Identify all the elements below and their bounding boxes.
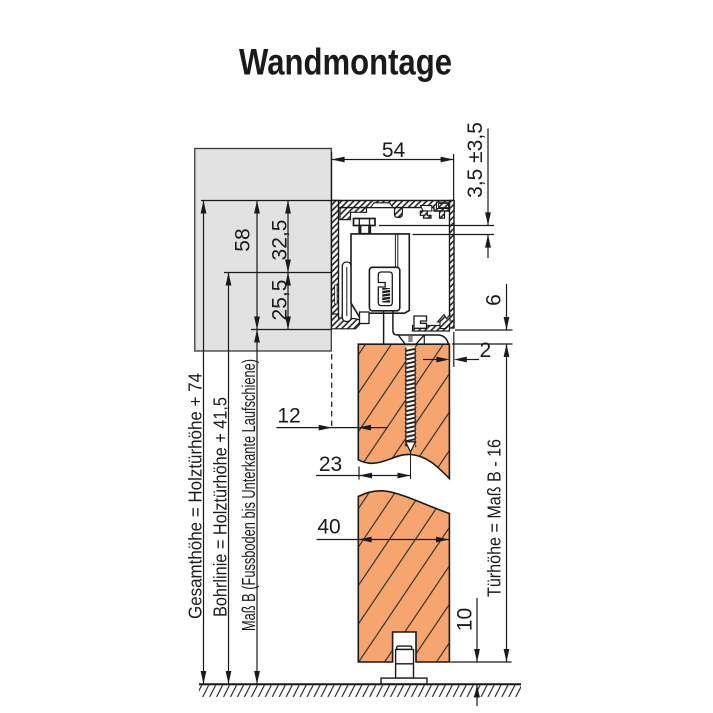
svg-text:58: 58 <box>232 228 255 251</box>
svg-text:25,5: 25,5 <box>269 280 292 321</box>
svg-text:40: 40 <box>317 516 340 539</box>
svg-text:2: 2 <box>480 339 492 362</box>
svg-text:32,5: 32,5 <box>269 220 292 261</box>
svg-text:3,5 ±3,5: 3,5 ±3,5 <box>464 122 487 198</box>
svg-text:54: 54 <box>382 139 406 162</box>
svg-text:Bohrlinie = Holztürhöhe + 41,5: Bohrlinie = Holztürhöhe + 41,5 <box>211 397 231 617</box>
svg-text:Maß B (Fussboden bis Unterkant: Maß B (Fussboden bis Unterkante Laufschi… <box>239 359 259 631</box>
svg-text:6: 6 <box>483 294 506 306</box>
svg-text:12: 12 <box>277 405 300 428</box>
svg-text:Gesamthöhe = Holztürhöhe + 74: Gesamthöhe = Holztürhöhe + 74 <box>186 373 206 619</box>
svg-text:Wandmontage: Wandmontage <box>239 42 452 83</box>
svg-text:10: 10 <box>454 608 477 631</box>
svg-text:23: 23 <box>319 453 342 476</box>
svg-text:Türhöhe = Maß B - 16: Türhöhe = Maß B - 16 <box>484 439 505 597</box>
